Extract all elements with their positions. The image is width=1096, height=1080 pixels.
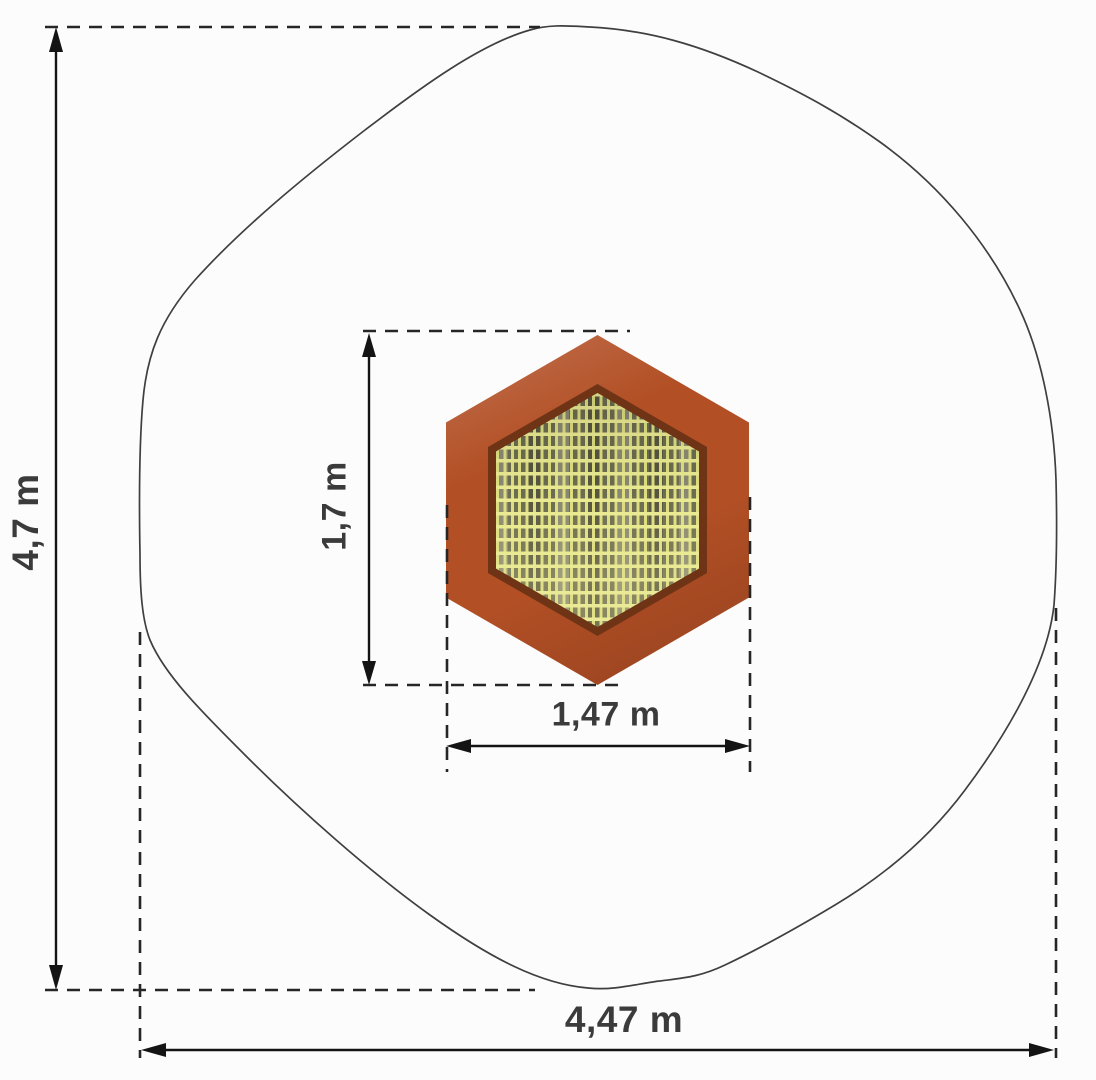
dimension-arrow-overall-width — [141, 1043, 1054, 1057]
label-overall-width: 4,47 m — [565, 999, 683, 1041]
label-overall-height: 4,7 m — [5, 473, 47, 570]
dimension-arrow-overall-height — [49, 27, 63, 990]
label-mat-height: 1,7 m — [316, 461, 355, 550]
diagram-canvas: 4,7 m 1,7 m 1,47 m 4,47 m — [0, 0, 1096, 1080]
safety-zone-outline — [139, 26, 1056, 989]
linework-layer — [0, 0, 1096, 1080]
dimension-arrow-mat-height — [362, 333, 376, 685]
dimension-arrow-mat-width — [446, 739, 750, 753]
label-mat-width: 1,47 m — [552, 696, 661, 735]
